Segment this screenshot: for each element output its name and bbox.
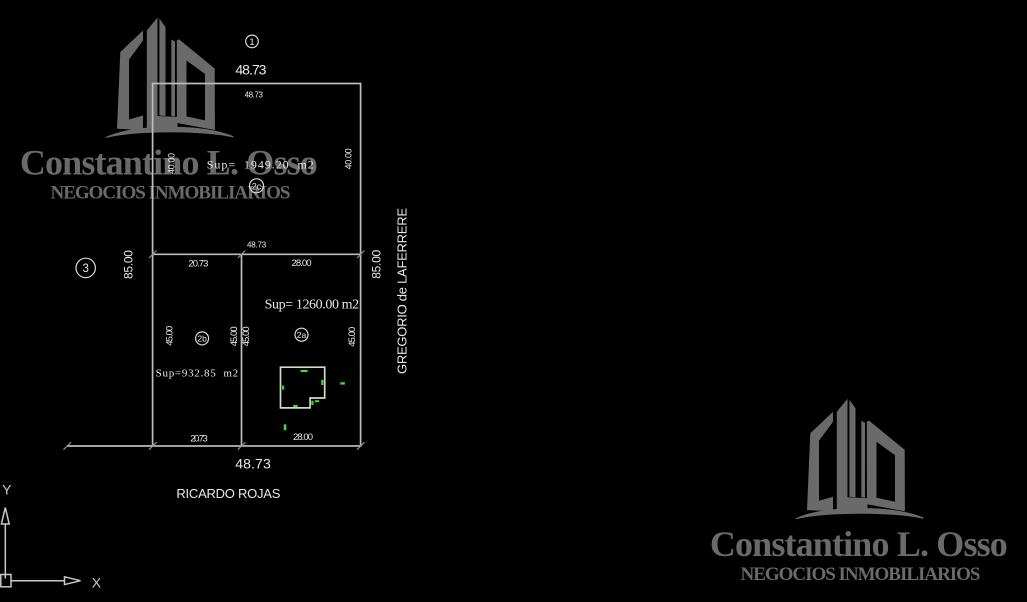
svg-text:45.00: 45.00 <box>165 326 176 346</box>
svg-text:40.00: 40.00 <box>343 148 353 169</box>
svg-text:85.00: 85.00 <box>122 250 136 279</box>
svg-text:1: 1 <box>249 37 254 48</box>
svg-text:28.00: 28.00 <box>292 258 312 269</box>
svg-text:20.73: 20.73 <box>190 434 208 445</box>
svg-text:45.00: 45.00 <box>241 326 252 346</box>
svg-text:3: 3 <box>82 263 88 275</box>
svg-text:48.73: 48.73 <box>247 241 267 250</box>
svg-text:Sup=932.85 m2: Sup=932.85 m2 <box>156 368 239 380</box>
svg-text:2c: 2c <box>252 181 262 191</box>
svg-text:28.00: 28.00 <box>293 432 313 443</box>
svg-text:48.73: 48.73 <box>245 90 264 99</box>
svg-text:Sup= 1949.20 m2: Sup= 1949.20 m2 <box>207 158 314 172</box>
svg-text:20.73: 20.73 <box>188 259 208 270</box>
svg-text:2b: 2b <box>197 334 207 344</box>
svg-text:X: X <box>92 574 102 590</box>
svg-text:40.00: 40.00 <box>167 153 177 174</box>
svg-text:45.00: 45.00 <box>347 327 358 347</box>
svg-text:45.00: 45.00 <box>229 326 240 346</box>
svg-text:RICARDO ROJAS: RICARDO ROJAS <box>176 486 280 501</box>
svg-text:GREGORIO de LAFERRERE: GREGORIO de LAFERRERE <box>395 208 410 374</box>
svg-text:Y: Y <box>2 481 12 497</box>
svg-text:Sup= 1260.00 m2: Sup= 1260.00 m2 <box>265 298 360 313</box>
svg-text:85.00: 85.00 <box>370 249 384 278</box>
svg-text:48.73: 48.73 <box>235 62 266 78</box>
svg-text:48.73: 48.73 <box>235 456 271 472</box>
svg-text:2a: 2a <box>297 330 307 340</box>
